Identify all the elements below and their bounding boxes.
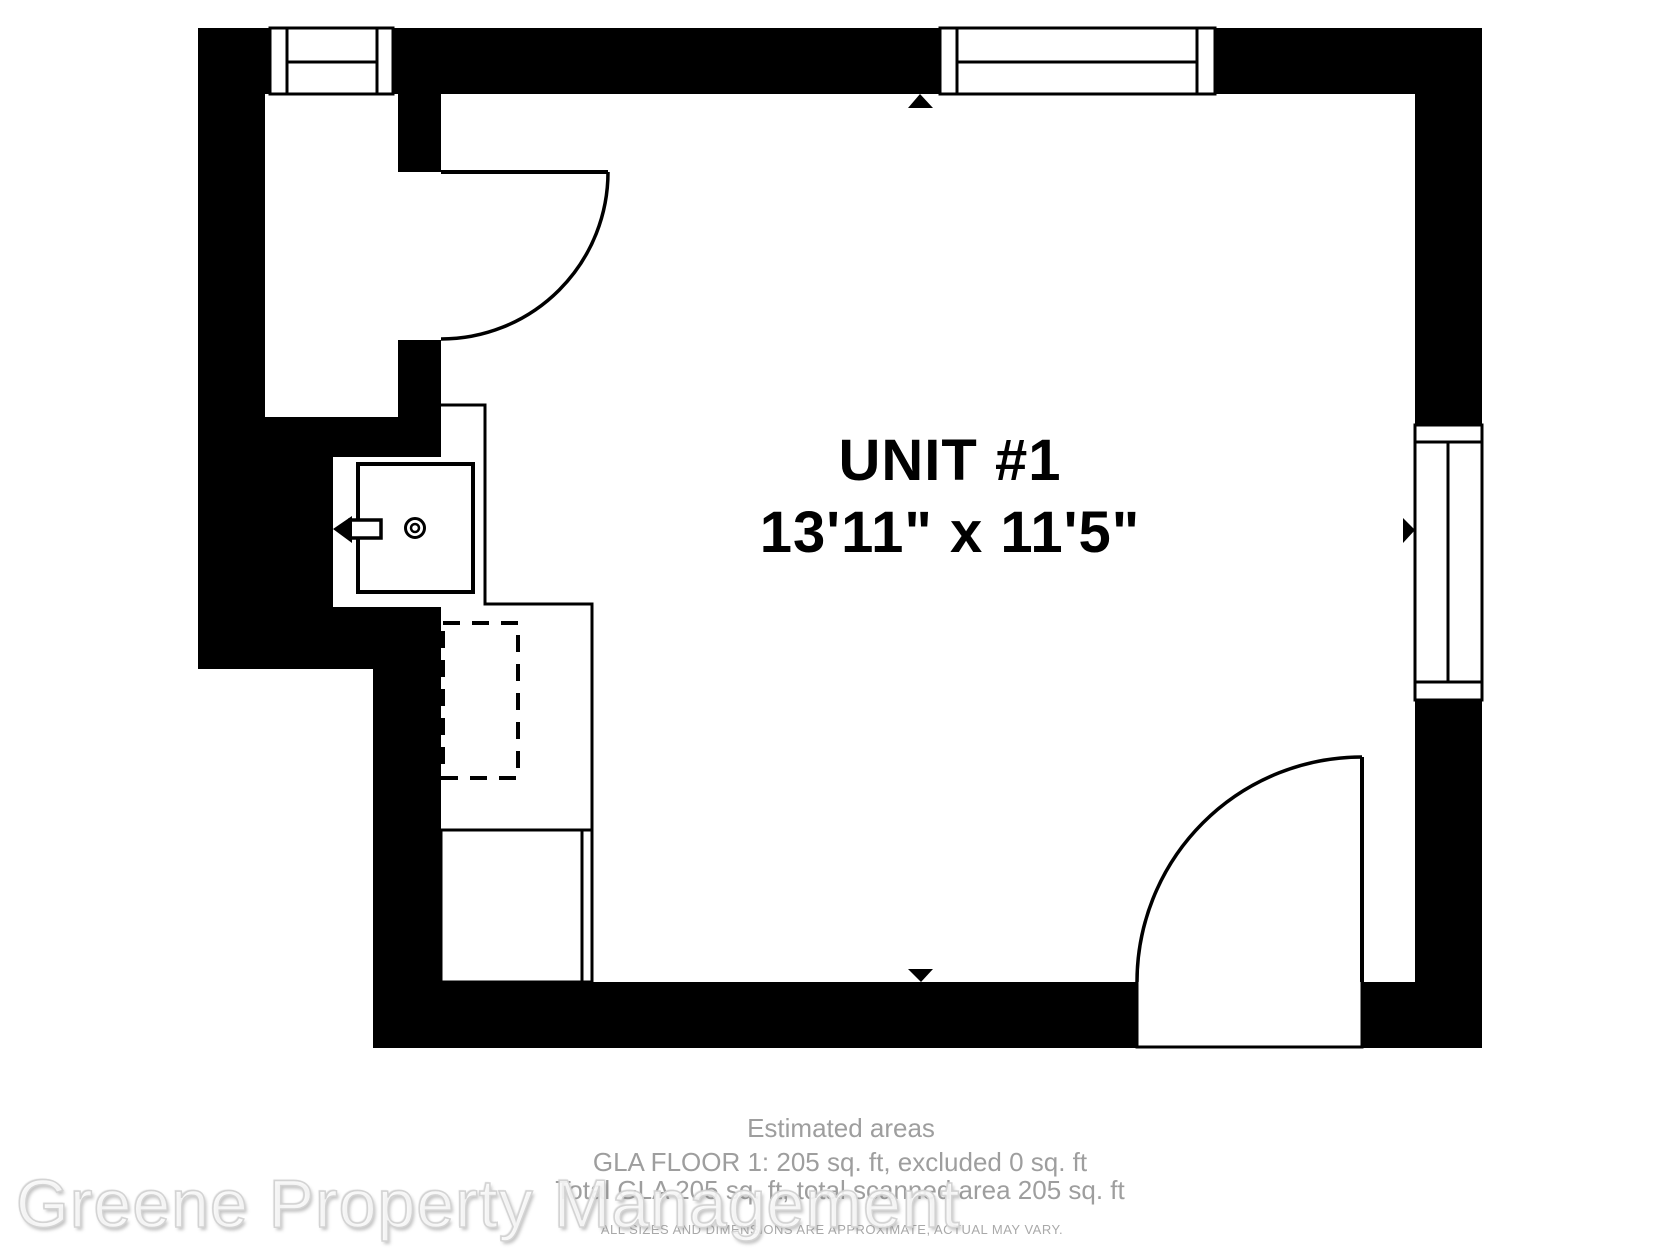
wall-left-upper: [198, 94, 265, 417]
dimension-arrow-up-icon: [908, 94, 933, 108]
wall-below-sink-nook: [333, 607, 441, 669]
room-dimensions: 13'11" x 11'5": [760, 499, 1140, 566]
window-top-right-icon: [940, 28, 1215, 94]
base-cabinet-icon: [441, 830, 592, 982]
wall-left-block: [198, 417, 333, 669]
floor-plan-canvas: [0, 0, 1680, 1260]
door-top-left-icon: [398, 172, 608, 340]
wall-bottom-left: [373, 982, 1137, 1048]
wall-bottom-right: [1362, 982, 1482, 1048]
footer-estimated-areas-title: Estimated areas: [747, 1113, 935, 1144]
wall-closet-right-upper: [398, 94, 441, 172]
door-bottom-right-icon: [1137, 757, 1362, 1048]
wall-right-upper: [1415, 94, 1482, 425]
wall-above-sink-nook: [333, 417, 441, 457]
dimension-arrow-down-icon: [908, 969, 933, 982]
watermark: Greene Property Management: [16, 1167, 961, 1242]
window-top-left-icon: [270, 28, 393, 94]
dimension-arrow-left-icon: [333, 516, 381, 543]
room-label: UNIT #1: [839, 427, 1062, 494]
wall-closet-right-lower: [398, 340, 441, 417]
wall-left-lower: [373, 669, 441, 982]
dimension-arrow-right-icon: [1403, 518, 1415, 543]
wall-right-lower: [1415, 700, 1482, 982]
floor-plan-page: UNIT #1 13'11" x 11'5" Estimated areas G…: [0, 0, 1680, 1260]
window-right-icon: [1415, 425, 1482, 700]
